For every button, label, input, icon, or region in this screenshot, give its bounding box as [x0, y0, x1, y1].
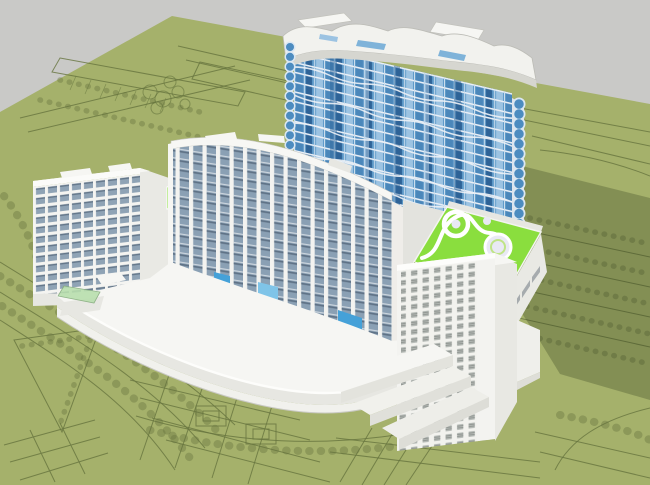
- midrise-low-wing: [517, 320, 540, 382]
- render-canvas: [0, 0, 650, 485]
- curved-slab-left-pier: [168, 143, 173, 267]
- roof-dot: [483, 217, 491, 225]
- roof-circle-center: [452, 220, 461, 229]
- architectural-render: [0, 0, 650, 485]
